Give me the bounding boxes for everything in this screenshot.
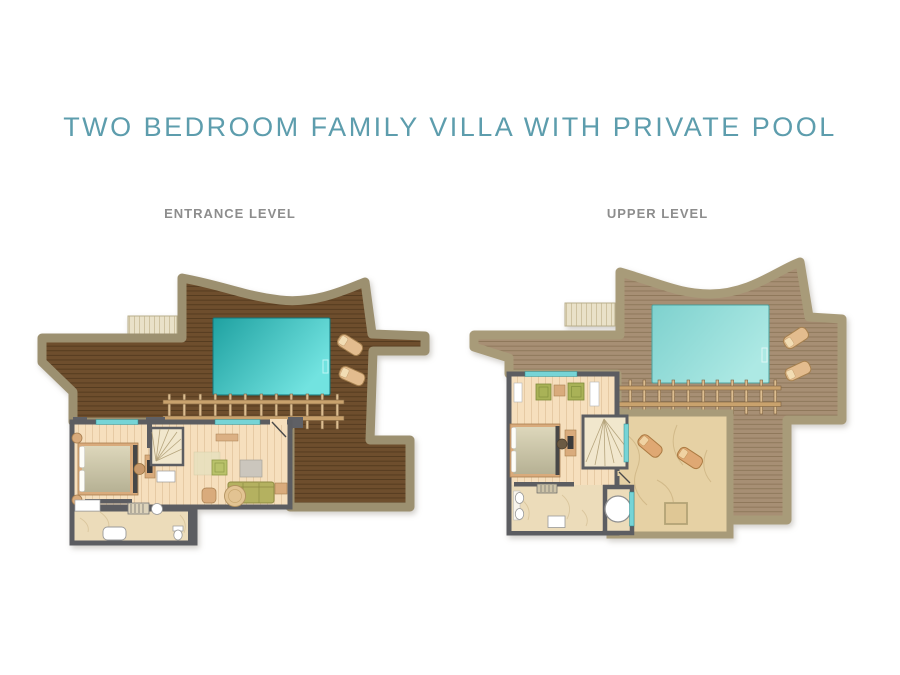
pillow xyxy=(512,428,517,449)
window xyxy=(630,492,635,526)
window xyxy=(624,424,629,462)
shower xyxy=(128,503,149,514)
page: TWO BEDROOM FAMILY VILLA WITH PRIVATE PO… xyxy=(0,0,900,675)
shelf xyxy=(590,382,599,406)
pillow xyxy=(80,447,85,468)
shelf xyxy=(514,383,522,402)
shower xyxy=(548,516,565,528)
footboard xyxy=(556,426,560,475)
shelf xyxy=(157,471,175,482)
pillow xyxy=(512,451,517,472)
grey-rug xyxy=(240,460,262,477)
interior xyxy=(509,372,634,534)
nightstand xyxy=(72,433,82,443)
window xyxy=(96,420,138,425)
window xyxy=(525,372,577,377)
floorplan-upper-level xyxy=(462,250,862,565)
closet xyxy=(75,500,100,511)
bathtub xyxy=(103,527,126,540)
dresser xyxy=(537,484,557,493)
round-bathtub xyxy=(605,496,631,522)
upper-level-label: UPPER LEVEL xyxy=(465,206,850,221)
side-table xyxy=(275,483,287,494)
bed xyxy=(510,424,560,477)
console-table xyxy=(216,434,238,441)
pillow xyxy=(80,471,85,492)
wall xyxy=(188,509,193,541)
entry-steps xyxy=(565,303,615,326)
toilet xyxy=(173,526,183,540)
terrace-mat xyxy=(665,503,687,524)
private-pool xyxy=(652,305,769,383)
armchair xyxy=(568,383,584,400)
window xyxy=(215,420,260,425)
bed xyxy=(72,433,138,505)
bathtub-room xyxy=(605,487,634,533)
entrance-level-label: ENTRANCE LEVEL xyxy=(30,206,430,221)
page-title: TWO BEDROOM FAMILY VILLA WITH PRIVATE PO… xyxy=(0,112,900,143)
interior xyxy=(72,419,290,543)
sink xyxy=(152,504,163,515)
chair xyxy=(202,488,216,503)
side-table xyxy=(554,385,565,396)
floorplan-entrance-level xyxy=(30,250,430,560)
green-pouf xyxy=(212,460,227,475)
staircase xyxy=(583,416,629,468)
private-pool xyxy=(213,318,330,395)
armchair xyxy=(536,384,551,400)
